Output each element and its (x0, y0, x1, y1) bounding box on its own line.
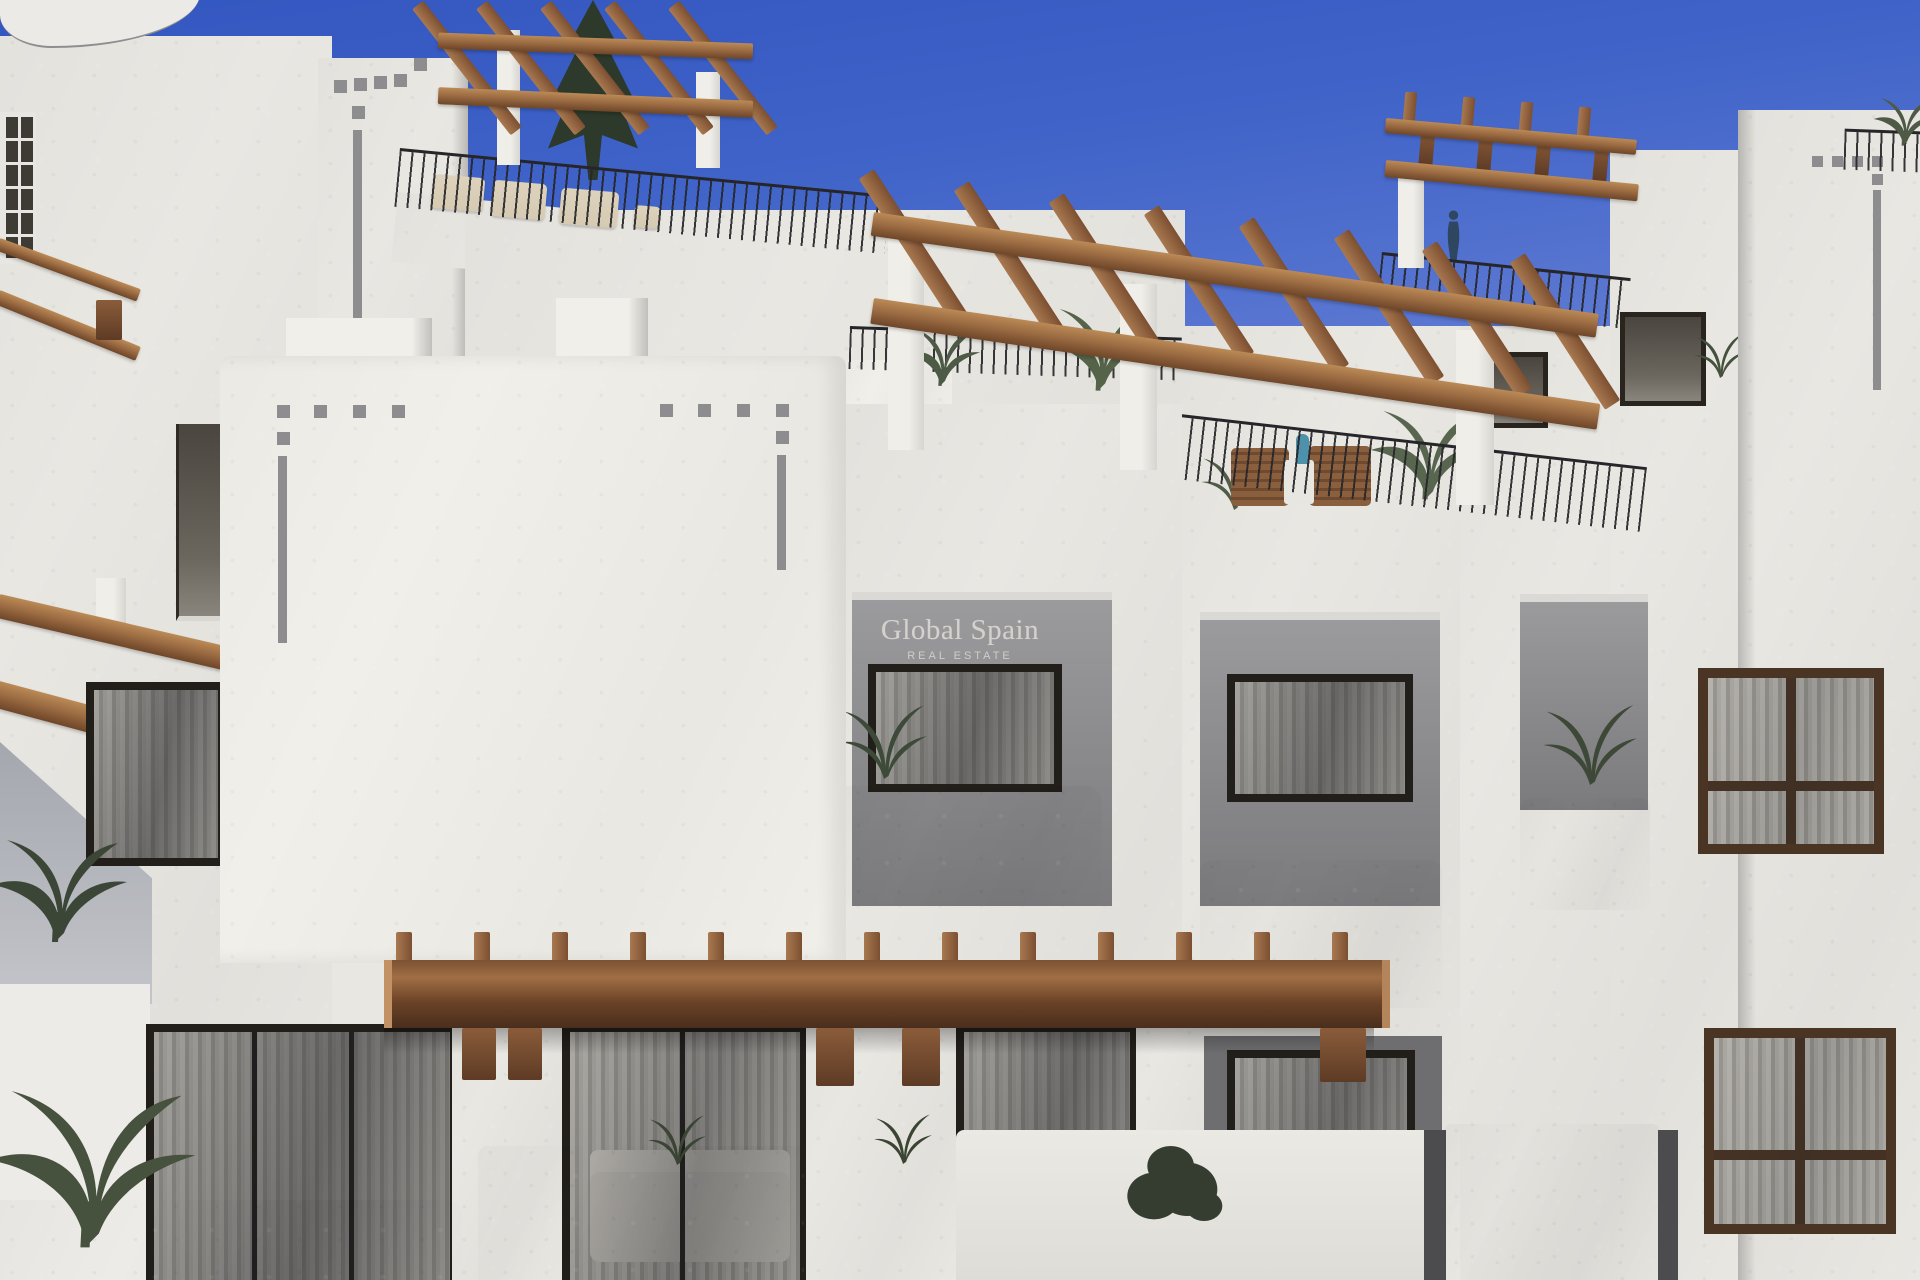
window-glass-tint (1235, 682, 1405, 794)
fern-plant-ground-2 (872, 1082, 934, 1184)
small-pergola-post (1398, 168, 1424, 268)
statue-figure (1446, 210, 1461, 262)
cutout-square (352, 106, 365, 119)
wood-window-lower-right (1704, 1028, 1896, 1234)
beam-bracket (816, 1028, 854, 1086)
beam-bracket (508, 1028, 542, 1080)
window-glass-tint (1708, 678, 1874, 844)
beam-bracket (462, 1028, 496, 1080)
cutout-square (660, 404, 673, 417)
left-upper-pergola-bracket (96, 300, 122, 340)
window-glass-tint (1714, 1038, 1886, 1224)
property-render-image: Global Spain REAL ESTATE (0, 0, 1920, 1280)
watermark-brand: Global Spain (800, 614, 1120, 647)
cutout-square (737, 404, 750, 417)
cutout-square (354, 78, 367, 91)
watermark-tagline: REAL ESTATE (800, 650, 1120, 662)
foreground-feature-wall (220, 356, 846, 963)
roof-step-shadow-2 (628, 298, 648, 358)
cutout-slit (777, 455, 786, 570)
palm-plant-far-right (1868, 86, 1920, 152)
cutout-square (394, 74, 407, 87)
cutout-square (392, 405, 405, 418)
watermark: Global Spain REAL ESTATE (800, 614, 1120, 662)
big-pergola-post-3 (1456, 330, 1494, 505)
parapet-gap (1658, 1130, 1678, 1280)
cutout-square (776, 404, 789, 417)
cutout-slit (278, 456, 287, 643)
cutout-square (314, 405, 327, 418)
palm-plant-bottom-left (0, 1030, 200, 1280)
fern-plant-balcony-center (838, 668, 930, 798)
cutout-square (1812, 156, 1823, 167)
narrow-window (176, 424, 225, 621)
parapet-gap (1424, 1130, 1446, 1280)
cutout-square (374, 76, 387, 89)
cutout-square (414, 58, 427, 71)
long-pergola-beam (384, 960, 1390, 1028)
beam-bracket (1320, 1028, 1366, 1082)
balcony-parapet-center (846, 786, 1102, 906)
cutout-square (353, 405, 366, 418)
cutout-square (1832, 156, 1843, 167)
bush-plant-bottom (1124, 1086, 1224, 1276)
cutout-square (277, 432, 290, 445)
cutout-slit (1873, 190, 1881, 390)
bottom-parapet-panel-c (1444, 1124, 1660, 1280)
wood-window-upper-right (1698, 668, 1884, 854)
balcony-parapet-right (1520, 798, 1650, 910)
cutout-square (334, 80, 347, 93)
cutout-square (698, 404, 711, 417)
cutout-square (1872, 174, 1883, 185)
cutout-square (776, 431, 789, 444)
cutout-square (277, 405, 290, 418)
bottom-parapet-panel-a (478, 1146, 804, 1280)
beam-bracket (902, 1028, 940, 1086)
fern-plant-balcony-right (1540, 660, 1640, 810)
window-mid-2 (1227, 674, 1413, 802)
palm-plant-mid-left (0, 780, 130, 990)
